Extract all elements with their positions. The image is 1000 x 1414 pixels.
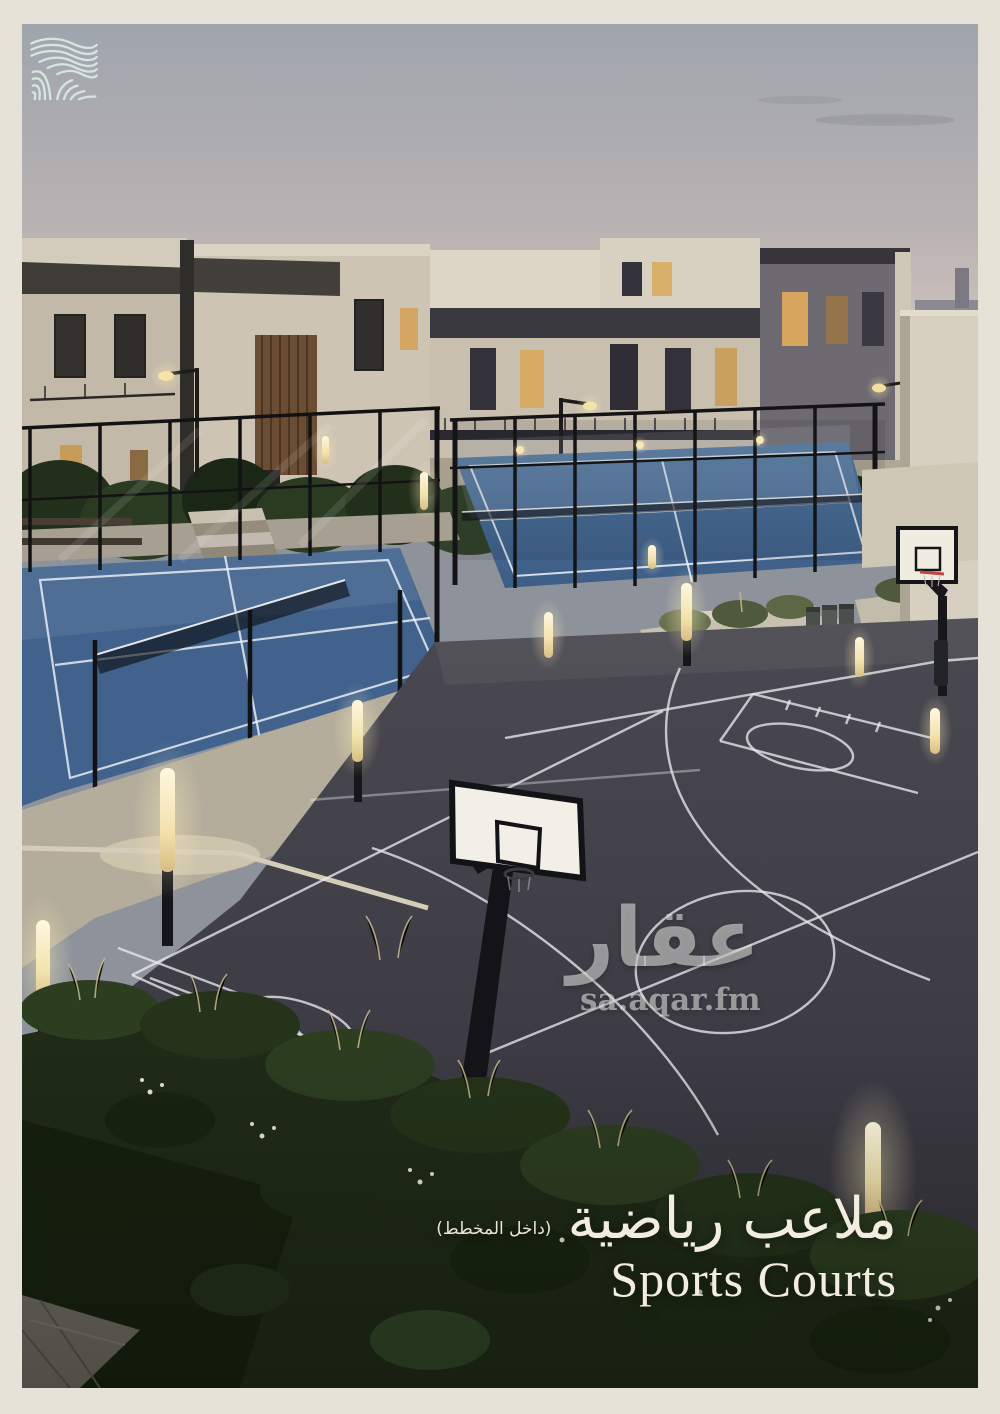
waves-logo-icon [30, 34, 98, 102]
caption-block: (داخل المخطط) ملاعب رياضية Sports Courts [436, 1190, 897, 1307]
poster-page: عقار sa.aqar.fm (داخل المخطط) ملاعب رياض… [0, 0, 1000, 1414]
caption-note-ar: (داخل المخطط) [436, 1219, 551, 1250]
padel-court-center [450, 404, 885, 588]
scene-render [22, 24, 978, 1388]
caption-title-en: Sports Courts [436, 1252, 897, 1307]
render-photo: عقار sa.aqar.fm (داخل المخطط) ملاعب رياض… [22, 24, 978, 1388]
caption-title-ar: ملاعب رياضية [567, 1190, 897, 1250]
